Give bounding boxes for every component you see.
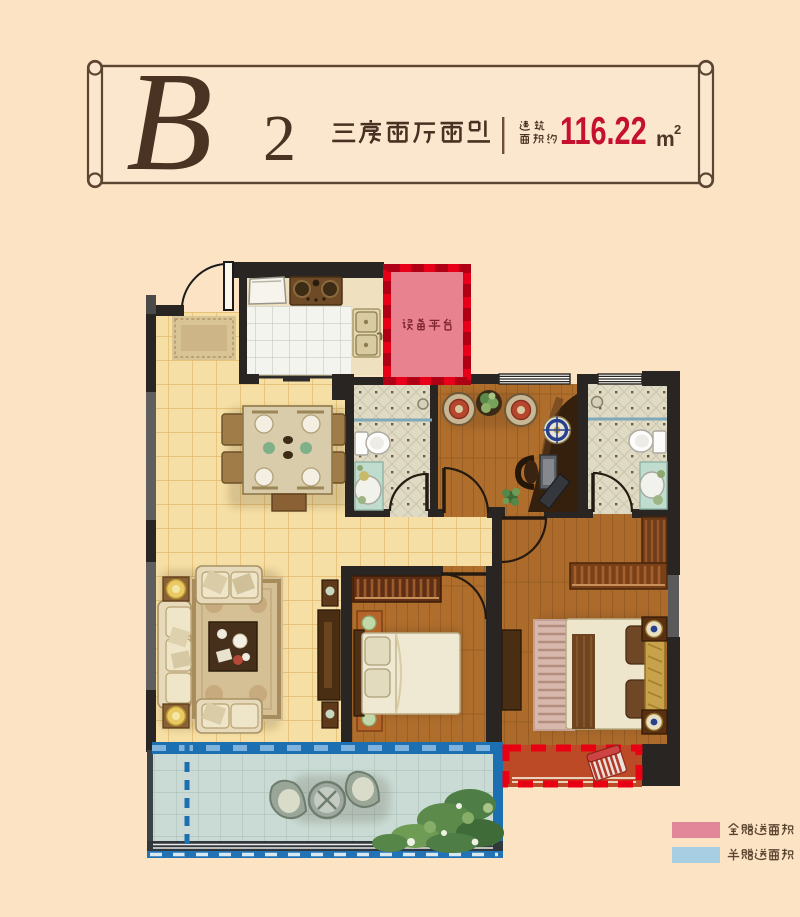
svg-text:116.22: 116.22: [560, 110, 647, 153]
svg-text:2: 2: [674, 122, 681, 137]
svg-text:m: m: [656, 128, 675, 151]
svg-text:B: B: [126, 42, 213, 200]
svg-text:2: 2: [263, 102, 296, 175]
